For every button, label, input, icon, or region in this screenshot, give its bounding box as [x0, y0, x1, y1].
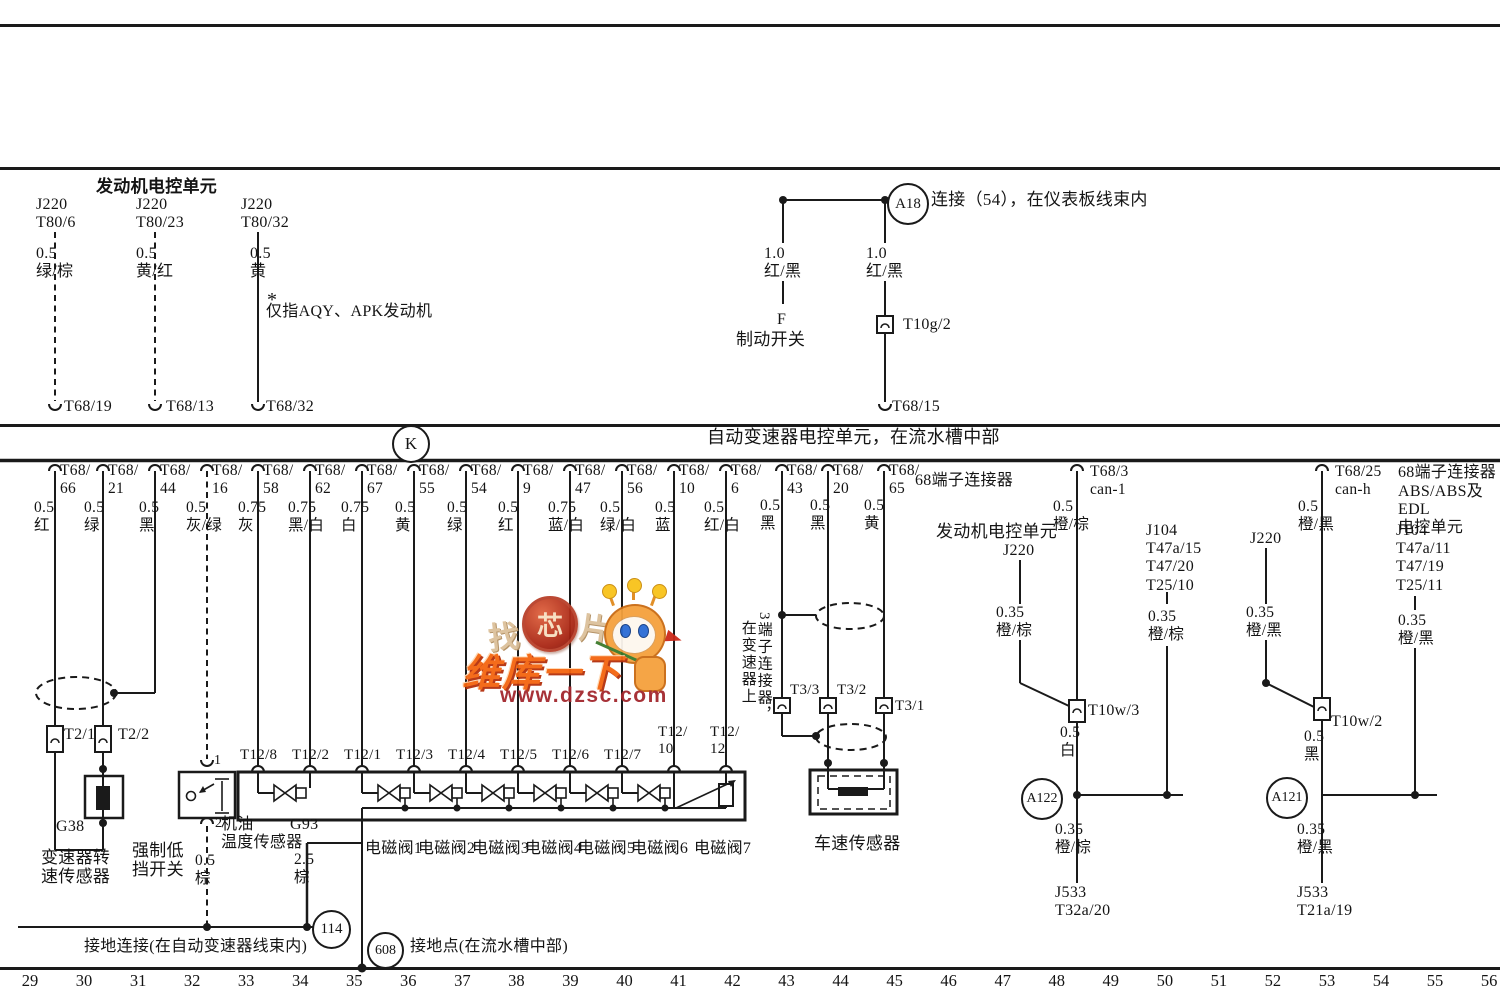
- component-label: 电磁阀3: [472, 840, 529, 858]
- wire-color-label: 0.35 橙/棕: [1148, 608, 1184, 643]
- ground-114: 114: [312, 910, 351, 949]
- pin-label: J220 T80/32: [241, 196, 289, 232]
- wire-color-label: 0.35 橙/黑: [1297, 821, 1333, 856]
- wire-color-label: 0.5 黄: [864, 497, 884, 532]
- wire-color-label: 0.5 绿: [447, 499, 467, 534]
- g38-sensor-group: [36, 677, 155, 850]
- ruler-number: 39: [550, 971, 590, 991]
- connector-label: T12/6: [552, 747, 589, 764]
- ground-608: 608: [367, 932, 404, 969]
- vertical-note: 在变速器上: [739, 620, 755, 705]
- ruler-number: 36: [388, 971, 428, 991]
- wire-color-label: 0.75 蓝/白: [548, 499, 584, 534]
- ruler-number: 32: [172, 971, 212, 991]
- ruler-number: 43: [767, 971, 807, 991]
- ruler-number: 56: [1469, 971, 1500, 991]
- wire-color-label: 0.5 黑: [1304, 728, 1324, 763]
- terminal-label: T68/13: [166, 398, 214, 416]
- pin-label: T68/ 43: [787, 462, 817, 497]
- component-label: 电磁阀1: [365, 840, 422, 858]
- connector-label: T12/3: [396, 747, 433, 764]
- wire-color-label: 1.0 红/黑: [764, 245, 801, 281]
- a18-desc: 连接（54），在仪表板线束内: [931, 190, 1148, 209]
- connector-label: T10w/2: [1331, 713, 1383, 731]
- connector-label: T2/2: [118, 726, 149, 744]
- connector-label: T12/4: [448, 747, 485, 764]
- connector-label: T12/7: [604, 747, 641, 764]
- pin-label: J220 T80/6: [36, 196, 76, 232]
- pin-label: T68/ 21: [108, 462, 138, 497]
- ruler-number: 37: [442, 971, 482, 991]
- wire-color-label: 0.5 橙/黑: [1298, 498, 1334, 533]
- wire-color-label: 0.75 白: [341, 499, 369, 534]
- wire-color-label: 0.5 红: [498, 499, 518, 534]
- component-label: 电磁阀7: [694, 840, 751, 858]
- wire-color-label: 0.5 棕: [195, 852, 215, 887]
- connector-label: T10g/2: [903, 316, 951, 334]
- wire-color-label: 0.35 橙/棕: [996, 604, 1032, 639]
- ruler-number: 45: [875, 971, 915, 991]
- brake-switch-id: F: [777, 311, 786, 329]
- wire-color-label: 0.5 红/白: [704, 499, 740, 534]
- connector-label: T3/1: [895, 698, 925, 715]
- component-label: 电磁阀5: [578, 840, 635, 858]
- engine-ecu-title: 发动机电控单元: [96, 177, 217, 196]
- ruler-number: 38: [496, 971, 536, 991]
- pin-label: T68/ 55: [419, 462, 449, 497]
- pin-label: J104 T47a/11 T47/19 T25/11: [1396, 522, 1451, 595]
- ruler-number: 34: [280, 971, 320, 991]
- wire-color-label: 0.35 橙/黑: [1398, 612, 1434, 647]
- component-label: 电磁阀6: [631, 840, 688, 858]
- ruler-number: 53: [1307, 971, 1347, 991]
- component-label: 变速器转 速传感器: [41, 848, 110, 887]
- ruler-number: 33: [226, 971, 266, 991]
- wire-color-label: 0.35 橙/黑: [1246, 604, 1282, 639]
- watermark-url: www.dzsc.com: [500, 684, 668, 708]
- wire-color-label: 0.5 灰/绿: [186, 499, 222, 534]
- wire-color-label: 0.5 黑: [760, 497, 780, 532]
- wire-color-label: 0.5 黄/红: [136, 245, 173, 281]
- pin-label: J533 T32a/20: [1055, 884, 1110, 920]
- wire-color-label: 0.5 红: [34, 499, 54, 534]
- pin-label: T68/ 62: [315, 462, 345, 497]
- component-label: 电磁阀4: [525, 840, 582, 858]
- ruler-number: 31: [118, 971, 158, 991]
- pin-label: T68/ 58: [263, 462, 293, 497]
- pin-label: T68/ 10: [679, 462, 709, 497]
- connector-label: T12/8: [240, 747, 277, 764]
- dzsc-watermark: 找 芯 片 维库一下 www.dzsc.com: [462, 596, 692, 714]
- pin-label: J220: [1003, 542, 1034, 560]
- ruler-number: 46: [929, 971, 969, 991]
- ruler-number: 55: [1415, 971, 1455, 991]
- ground-label: 接地连接(在自动变速器线束内): [84, 938, 307, 956]
- ruler-number: 30: [64, 971, 104, 991]
- ruler-number: 40: [604, 971, 644, 991]
- connector-note: 68端子连接器: [1398, 464, 1496, 482]
- wire-color-label: 0.75 灰: [238, 499, 266, 534]
- pin-label: T68/ 9: [523, 462, 553, 497]
- brake-switch-label: 制动开关: [736, 330, 805, 349]
- ruler-number: 52: [1253, 971, 1293, 991]
- ruler-number: 42: [713, 971, 753, 991]
- vehicle-speed-sensor-group: [774, 603, 897, 814]
- connector-label: T3/2: [837, 682, 867, 699]
- wire-color-label: 0.5 橙/棕: [1053, 498, 1089, 533]
- wire-color-label: 0.35 橙/棕: [1055, 821, 1091, 856]
- component-label: 车速传感器: [814, 834, 901, 853]
- wire-color-label: 0.5 白: [1060, 724, 1080, 759]
- connector-label: T12/1: [344, 747, 381, 764]
- pin-number: 1: [214, 753, 221, 769]
- terminal-label: T68/32: [266, 398, 314, 416]
- ruler-number: 48: [1037, 971, 1077, 991]
- wire-color-label: 2.5 棕: [294, 851, 314, 886]
- connector-label: T3/3: [790, 682, 820, 699]
- pin-label: T68/ 67: [367, 462, 397, 497]
- wire-color-label: 0.5 黑: [139, 499, 159, 534]
- wire-color-label: 0.5 黄: [395, 499, 415, 534]
- connector-label: T12/ 10: [658, 724, 688, 758]
- wire-color-label: 1.0 红/黑: [866, 245, 903, 281]
- vertical-note: 3端子连接器，: [755, 612, 771, 724]
- ruler-number: 50: [1145, 971, 1185, 991]
- pin-label: T68/ 16: [212, 462, 242, 497]
- ruler-number: 41: [658, 971, 698, 991]
- pin-label: T68/3 can-1: [1090, 463, 1129, 498]
- wire-color-label: 0.5 绿/白: [600, 499, 636, 534]
- component-label: 电磁阀2: [418, 840, 475, 858]
- ruler-number: 51: [1199, 971, 1239, 991]
- wire-color-label: 0.5 绿/棕: [36, 245, 73, 281]
- connector-label: T10w/3: [1088, 702, 1140, 720]
- connector-note: 68端子连接器: [915, 472, 1013, 490]
- component-label: 强制低 挡开关: [132, 841, 184, 880]
- pin-label: T68/25 can-h: [1335, 463, 1382, 498]
- k-symbol: K: [392, 425, 430, 463]
- pin-label: J533 T21a/19: [1297, 884, 1352, 920]
- pin-label: T68/ 66: [60, 462, 90, 497]
- wire-color-label: 0.75 黑/白: [288, 499, 324, 534]
- terminal-label: T68/19: [64, 398, 112, 416]
- connector-label: T12/ 12: [710, 724, 740, 758]
- ruler-number: 49: [1091, 971, 1131, 991]
- a122-node: A122: [1021, 778, 1063, 820]
- ruler-number: 44: [821, 971, 861, 991]
- pin-label: T68/ 6: [731, 462, 761, 497]
- pin-label: T68/ 56: [627, 462, 657, 497]
- wire-color-label: 0.5 黑: [810, 497, 830, 532]
- pin-label: T68/ 54: [471, 462, 501, 497]
- pin-label: J104 T47a/15 T47/20 T25/10: [1146, 522, 1201, 595]
- terminal-label: T68/15: [892, 398, 940, 416]
- wiring-diagram-page: 发动机电控单元J220 T80/6J220 T80/23J220 T80/320…: [0, 0, 1500, 1004]
- engine-ecu-mid: 发动机电控单元: [936, 522, 1057, 541]
- pin-label: J220 T80/23: [136, 196, 184, 232]
- a18-brake-circuit: [779, 196, 893, 410]
- pin-label: T68/ 44: [160, 462, 190, 497]
- connector-label: T12/5: [500, 747, 537, 764]
- wire-color-label: 0.5 蓝: [655, 499, 675, 534]
- connector-label: T12/2: [292, 747, 329, 764]
- pin-label: T68/ 20: [833, 462, 863, 497]
- pin-label: J220: [1250, 530, 1281, 548]
- component-id: G93: [290, 816, 318, 834]
- ruler-number: 47: [983, 971, 1023, 991]
- pin-label: T68/ 47: [575, 462, 605, 497]
- band-title: 自动变速器电控单元，在流水槽中部: [707, 427, 1000, 448]
- ruler-number: 29: [10, 971, 50, 991]
- ruler-number: 54: [1361, 971, 1401, 991]
- engine-note: 仅指AQY、APK发动机: [266, 303, 432, 321]
- component-id: G38: [56, 818, 84, 836]
- wire-color-label: 0.5 黄: [250, 245, 271, 281]
- ground-label: 接地点(在流水槽中部): [410, 938, 568, 956]
- wire-color-label: 0.5 绿: [84, 499, 104, 534]
- a121-node: A121: [1266, 777, 1308, 819]
- connector-label: T2/1: [64, 726, 95, 744]
- ruler-number: 35: [334, 971, 374, 991]
- a18-node: A18: [887, 183, 929, 225]
